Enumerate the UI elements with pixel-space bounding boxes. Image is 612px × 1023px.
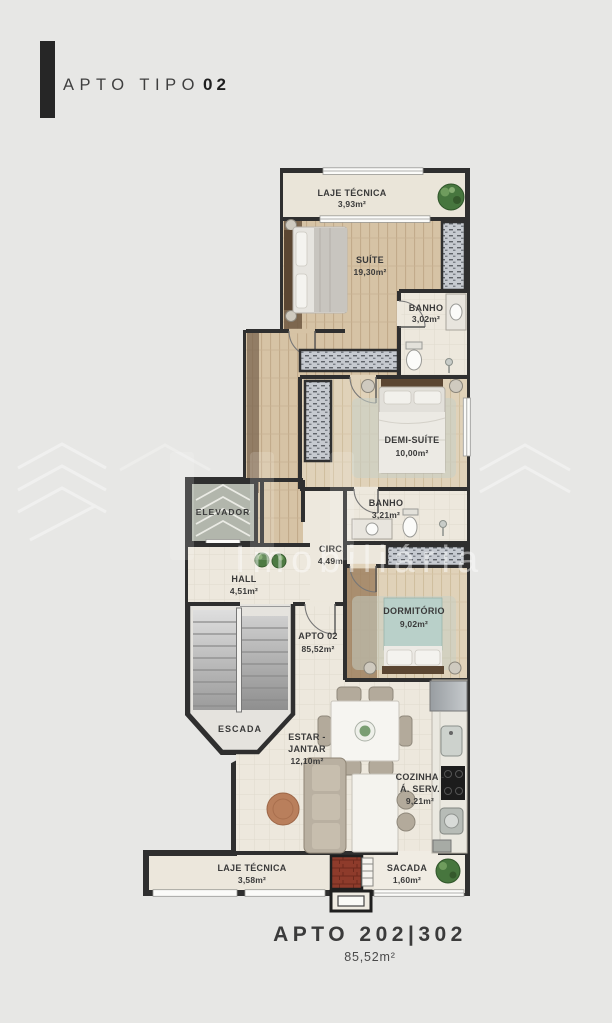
label-estar-jantar-2: JANTAR — [288, 744, 326, 754]
floor-plan-page: APTO TIPO 02 — [0, 0, 612, 1023]
plant-icon — [438, 184, 464, 210]
nightstand — [449, 662, 461, 674]
stair-flight-left — [193, 610, 237, 710]
chair — [369, 760, 393, 775]
fridge — [430, 681, 467, 711]
label-laje-tecnica-bottom-area: 3,58m² — [238, 875, 266, 885]
shower-icon — [446, 359, 453, 366]
label-suite: SUÍTE — [356, 255, 384, 265]
window-demi-suite — [463, 398, 470, 456]
label-banho1: BANHO — [409, 303, 444, 313]
label-cozinha-2: Á. SERV. — [400, 784, 440, 794]
nightstand — [450, 380, 463, 393]
kitchen-sink — [441, 726, 462, 756]
toilet — [406, 342, 422, 349]
label-hall-area: 4,51m² — [230, 586, 258, 596]
label-apto-02-area: 85,52m² — [301, 644, 334, 654]
chair — [369, 687, 393, 702]
sacada-railing — [374, 890, 464, 897]
label-cozinha-area: 9,21m² — [406, 796, 434, 806]
label-banho2-area: 3,21m² — [372, 510, 400, 520]
label-cozinha: COZINHA - — [396, 772, 445, 782]
kitchen — [430, 680, 467, 853]
nightstand — [362, 380, 375, 393]
label-banho2: BANHO — [369, 498, 404, 508]
plant-icon — [436, 859, 460, 883]
label-elevador: ELEVADOR — [196, 507, 251, 517]
label-estar-jantar: ESTAR - — [288, 732, 325, 742]
label-apto-02: APTO 02 — [298, 631, 337, 641]
page-title-number: 02 — [203, 75, 230, 94]
chair — [399, 716, 412, 746]
cabinet — [433, 840, 451, 852]
window-top-wall — [323, 168, 423, 175]
pouf — [397, 813, 415, 831]
centerpiece-icon — [360, 726, 371, 737]
suite-wardrobe — [442, 222, 465, 290]
stair-divider-rail — [237, 608, 242, 712]
label-sacada: SACADA — [387, 863, 428, 873]
nightstand — [364, 662, 376, 674]
suite-wardrobe-2 — [300, 350, 398, 371]
label-demi-suite: DEMI-SUÍTE — [384, 435, 439, 445]
label-demi-suite-area: 10,00m² — [395, 448, 428, 458]
stair-flight-right — [241, 616, 288, 710]
title-accent-bar — [40, 41, 55, 118]
label-banho1-area: 3,02m² — [412, 314, 440, 324]
footer-area: 85,52m² — [344, 950, 395, 964]
demi-suite-wardrobe — [305, 381, 331, 461]
watermark-text: Imobiliária — [235, 539, 485, 581]
label-escada: ESCADA — [218, 724, 262, 734]
chair — [337, 687, 361, 702]
label-dormitorio-area: 9,02m² — [400, 619, 428, 629]
round-rug — [267, 793, 299, 825]
barbecue — [331, 856, 373, 911]
label-estar-jantar-area: 12,10m² — [290, 756, 323, 766]
floor-plan-svg: APTO TIPO 02 — [0, 0, 612, 1023]
label-laje-tecnica-top-area: 3,93m² — [338, 199, 366, 209]
label-sacada-area: 1,60m² — [393, 875, 421, 885]
shower-icon — [440, 521, 447, 528]
label-laje-tecnica-top: LAJE TÉCNICA — [317, 188, 386, 198]
label-laje-tecnica-bottom: LAJE TÉCNICA — [217, 863, 286, 873]
footer-unit: APTO 202|302 — [273, 923, 467, 946]
barbecue-grill-icon — [362, 858, 373, 886]
suite-bed — [284, 220, 347, 322]
label-dormitorio: DORMITÓRIO — [383, 605, 445, 616]
label-suite-area: 19,30m² — [353, 267, 386, 277]
console-table — [352, 774, 398, 852]
page-title: APTO TIPO — [63, 76, 200, 94]
toilet — [403, 509, 418, 515]
window-suite — [320, 216, 430, 223]
barbecue-brick — [331, 856, 362, 889]
